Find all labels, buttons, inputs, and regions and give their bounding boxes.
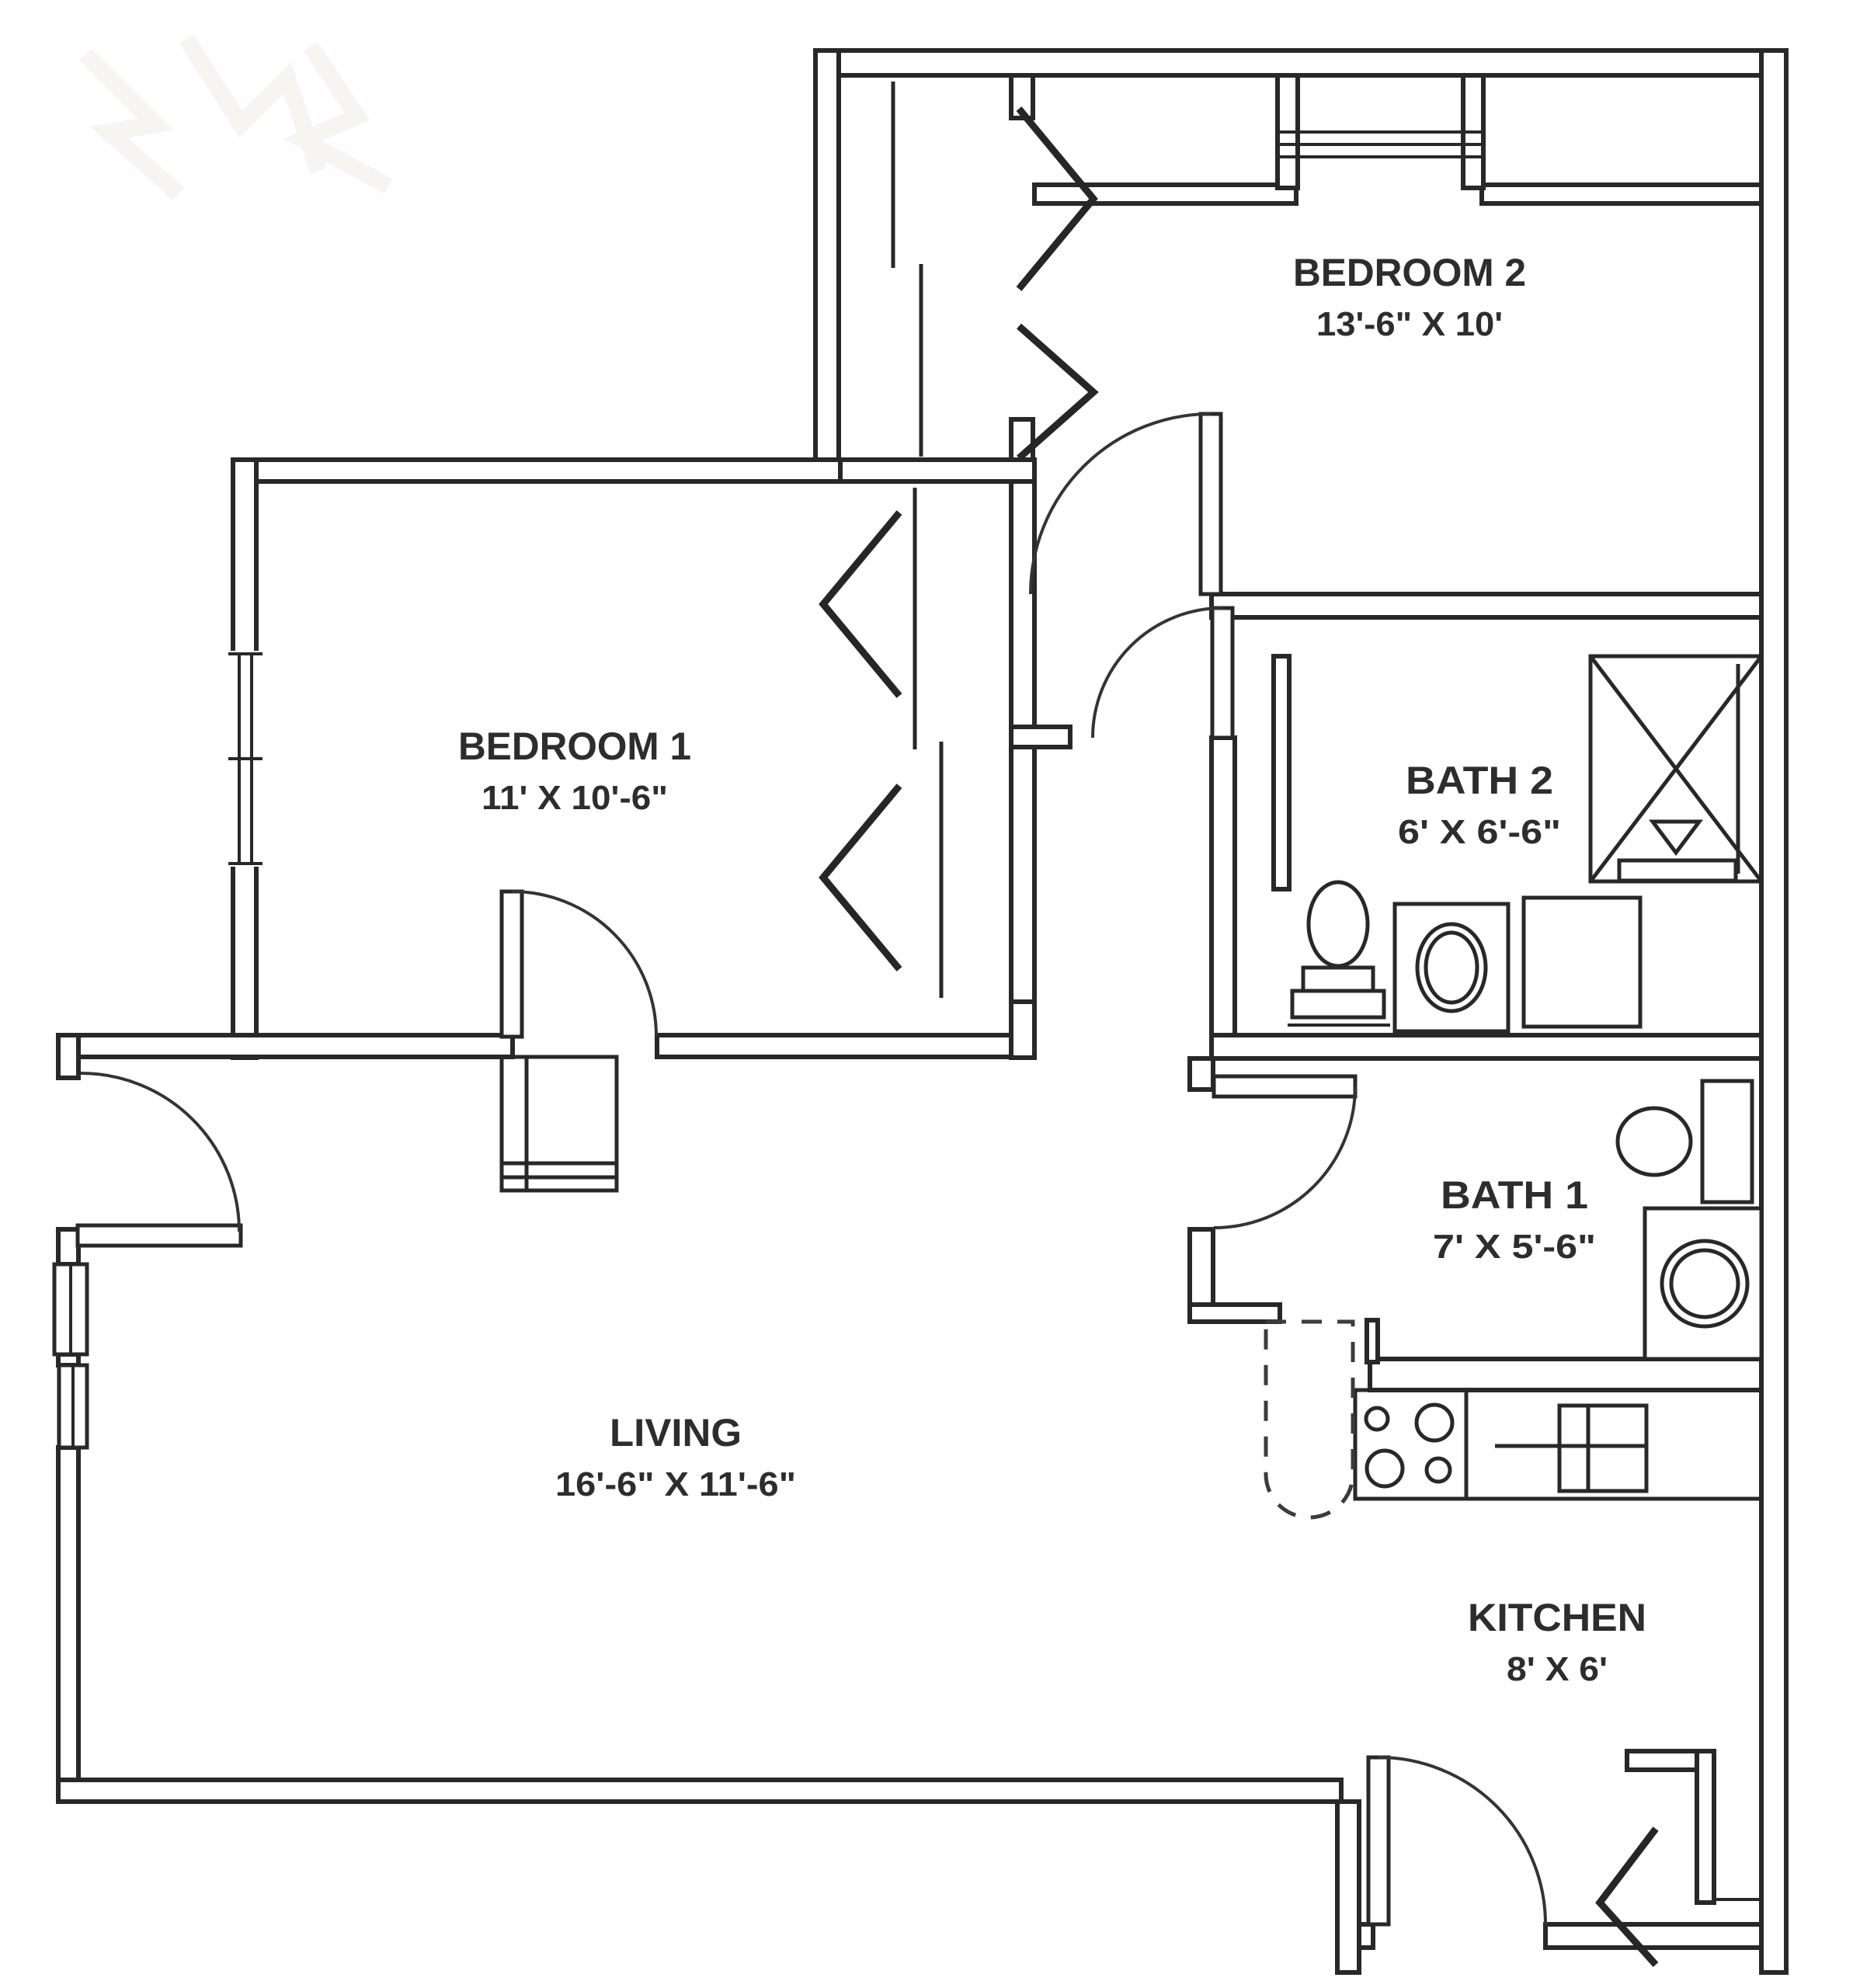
bath-2-door [1093, 608, 1232, 738]
bath-1-door [1214, 1076, 1355, 1228]
wall-segment-living-left-mid [58, 1229, 78, 1264]
door-swing-arc [1031, 414, 1211, 594]
bifold-door-icon [823, 513, 899, 696]
toilet-bowl [1309, 882, 1368, 966]
bath-1-fixtures [1618, 1081, 1761, 1359]
kitchen-sink [1495, 1406, 1648, 1491]
wall-segment-bedroom2-bottom [1212, 594, 1761, 617]
door-leaf [502, 891, 522, 1037]
wall-segment-bedroom1-bottom-right [657, 1035, 1034, 1057]
bedroom-2-label: BEDROOM 2 [1293, 251, 1526, 294]
door-swing-arc [1093, 608, 1222, 738]
toilet-tank [1702, 1081, 1752, 1202]
bedroom-2-door [1031, 414, 1221, 594]
bath-2-vanity-sink [1395, 904, 1508, 1031]
bedroom-2-closet [893, 82, 1093, 458]
bifold-door-icon [823, 786, 899, 969]
burner-icon [1417, 1405, 1452, 1441]
wall-segment-bedroom1-bottom-left [58, 1035, 513, 1057]
door-leaf [1368, 1757, 1389, 1924]
wall-segment-hall-stub [1011, 727, 1070, 747]
burner-icon [1367, 1451, 1403, 1486]
door-leaf [1201, 414, 1221, 594]
door-swing-arc [81, 1073, 239, 1232]
wall-segment-right [1761, 50, 1786, 1972]
wall-segment-living-left-stub [58, 1035, 78, 1078]
toilet-tank [1303, 968, 1373, 991]
wall-segment-top [815, 50, 1786, 75]
wall-segment-entry-left [1337, 1802, 1359, 1972]
bedroom-1-window [228, 651, 261, 867]
wall-segment-kitchen-connector [1367, 1320, 1378, 1362]
watermark [85, 39, 388, 194]
doors [78, 414, 1545, 1924]
bath-2-label: BATH 2 [1406, 759, 1553, 802]
door-swing-arc [1214, 1086, 1355, 1228]
floor-plan-drawing: BEDROOM 2 13'-6" X 10' BEDROOM 1 11' X 1… [0, 0, 1853, 1988]
kitchen-range-burners [1366, 1405, 1452, 1486]
shower [1591, 656, 1761, 881]
bath-1-dimensions: 7' X 5'-6" [1433, 1228, 1596, 1266]
wall-segment-living-bottom [58, 1780, 1341, 1802]
bedroom-1-label: BEDROOM 1 [458, 725, 691, 768]
wall-segment-bath1-jog [1190, 1305, 1280, 1322]
living-room-windows [54, 1264, 87, 1448]
windows [54, 132, 1479, 1448]
living-label: LIVING [610, 1411, 742, 1455]
wall-segment-bottom-b [1545, 1924, 1761, 1948]
door-leaf [78, 1225, 241, 1246]
bedroom-1-dimensions: 11' X 10'-6" [482, 779, 668, 817]
living-shelf-unit [502, 1057, 617, 1190]
sink-bowl [1559, 1406, 1646, 1491]
shower-drain-icon [1653, 822, 1699, 853]
patio-door [78, 1073, 241, 1246]
kitchen-dimensions: 8' X 6' [1507, 1650, 1608, 1688]
wall-segment-soffit-right [1482, 185, 1761, 203]
entry-door [1368, 1757, 1545, 1924]
wall-segment-bath-divider [1212, 1035, 1761, 1058]
bedroom-2-window [1281, 132, 1479, 157]
wall-segment-bath1-left-lower [1190, 1229, 1213, 1307]
wall-segment-soffit-left [1034, 185, 1296, 203]
bedroom-1-closet [823, 488, 941, 998]
shelf-outline [502, 1057, 617, 1190]
door-swing-arc [1378, 1757, 1545, 1924]
door-leaf [1214, 1076, 1355, 1097]
door-swing-arc [512, 891, 656, 1036]
wall-segment-living-left-lower [58, 1448, 78, 1802]
wall-segment-bottom-a [1359, 1924, 1373, 1948]
water-heater [1266, 1322, 1353, 1517]
bath-1-vanity-sink [1645, 1208, 1761, 1359]
toilet-base [1292, 991, 1384, 1017]
wall-segment-closet2-bottom [840, 460, 1034, 481]
bath-2-toilet [1289, 882, 1389, 1025]
watermark-squiggle [85, 39, 388, 194]
burner-icon [1427, 1458, 1450, 1482]
living-dimensions: 16'-6" X 11'-6" [555, 1465, 796, 1503]
bath-2-dimensions: 6' X 6'-6" [1398, 813, 1561, 851]
bedroom-1-door [502, 891, 656, 1037]
wall-segment-hall-left-bottom [1011, 1002, 1034, 1058]
wall-segment-kitchen-north [1370, 1359, 1761, 1390]
kitchen-label: KITCHEN [1468, 1596, 1646, 1639]
burner-icon [1366, 1408, 1388, 1430]
shower-step [1619, 860, 1736, 881]
bath2-privacy-partition [1274, 656, 1289, 889]
bath-2-cabinet [1524, 898, 1640, 1027]
wall-segment-hall-right [1212, 738, 1235, 1058]
floor-plan: BEDROOM 2 13'-6" X 10' BEDROOM 1 11' X 1… [0, 0, 1853, 1988]
wall-segment-entry-closet-left [1697, 1751, 1714, 1903]
door-leaf [1212, 608, 1232, 738]
bedroom-2-dimensions: 13'-6" X 10' [1316, 305, 1503, 343]
wall-segment-bath1-left-stub [1190, 1058, 1213, 1090]
wall-segment-topblock-left [815, 50, 839, 462]
bath-1-label: BATH 1 [1441, 1173, 1588, 1217]
toilet-bowl [1618, 1108, 1691, 1175]
wall-segment-bedroom1-top [233, 460, 840, 481]
bath-1-toilet [1618, 1081, 1752, 1202]
